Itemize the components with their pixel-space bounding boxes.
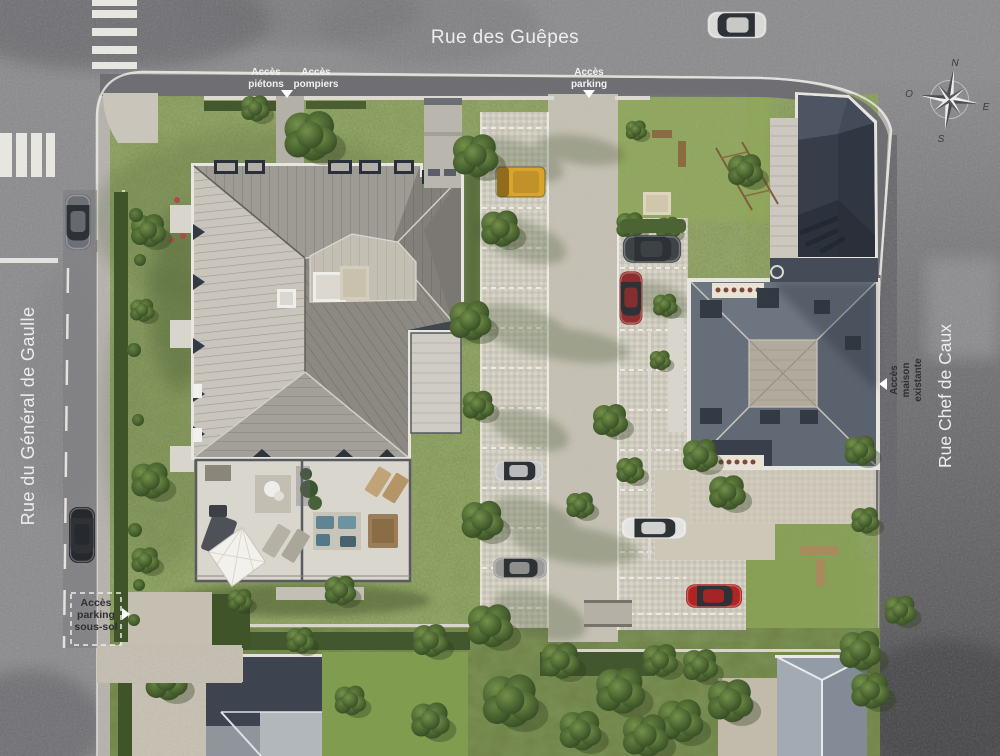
svg-text:Rue Chef de Caux: Rue Chef de Caux <box>935 324 955 468</box>
svg-text:existante: existante <box>913 358 924 402</box>
svg-text:piétons: piétons <box>248 79 284 90</box>
svg-text:Rue du Général de Gaulle: Rue du Général de Gaulle <box>18 307 38 526</box>
svg-text:S: S <box>938 134 945 145</box>
svg-text:Accès: Accès <box>251 67 281 78</box>
svg-text:parking: parking <box>571 79 607 90</box>
svg-text:maison: maison <box>901 362 912 397</box>
svg-text:N: N <box>951 58 959 69</box>
svg-text:Accès: Accès <box>574 67 604 78</box>
svg-text:pompiers: pompiers <box>293 79 338 90</box>
svg-text:Rue des Guêpes: Rue des Guêpes <box>431 27 579 48</box>
svg-text:sous-sol: sous-sol <box>74 621 117 633</box>
svg-text:O: O <box>905 89 913 100</box>
svg-text:Accès: Accès <box>301 67 331 78</box>
svg-text:E: E <box>983 102 990 113</box>
svg-text:parking: parking <box>77 609 115 621</box>
svg-text:Accès: Accès <box>889 365 900 395</box>
svg-text:Accès: Accès <box>81 597 112 609</box>
